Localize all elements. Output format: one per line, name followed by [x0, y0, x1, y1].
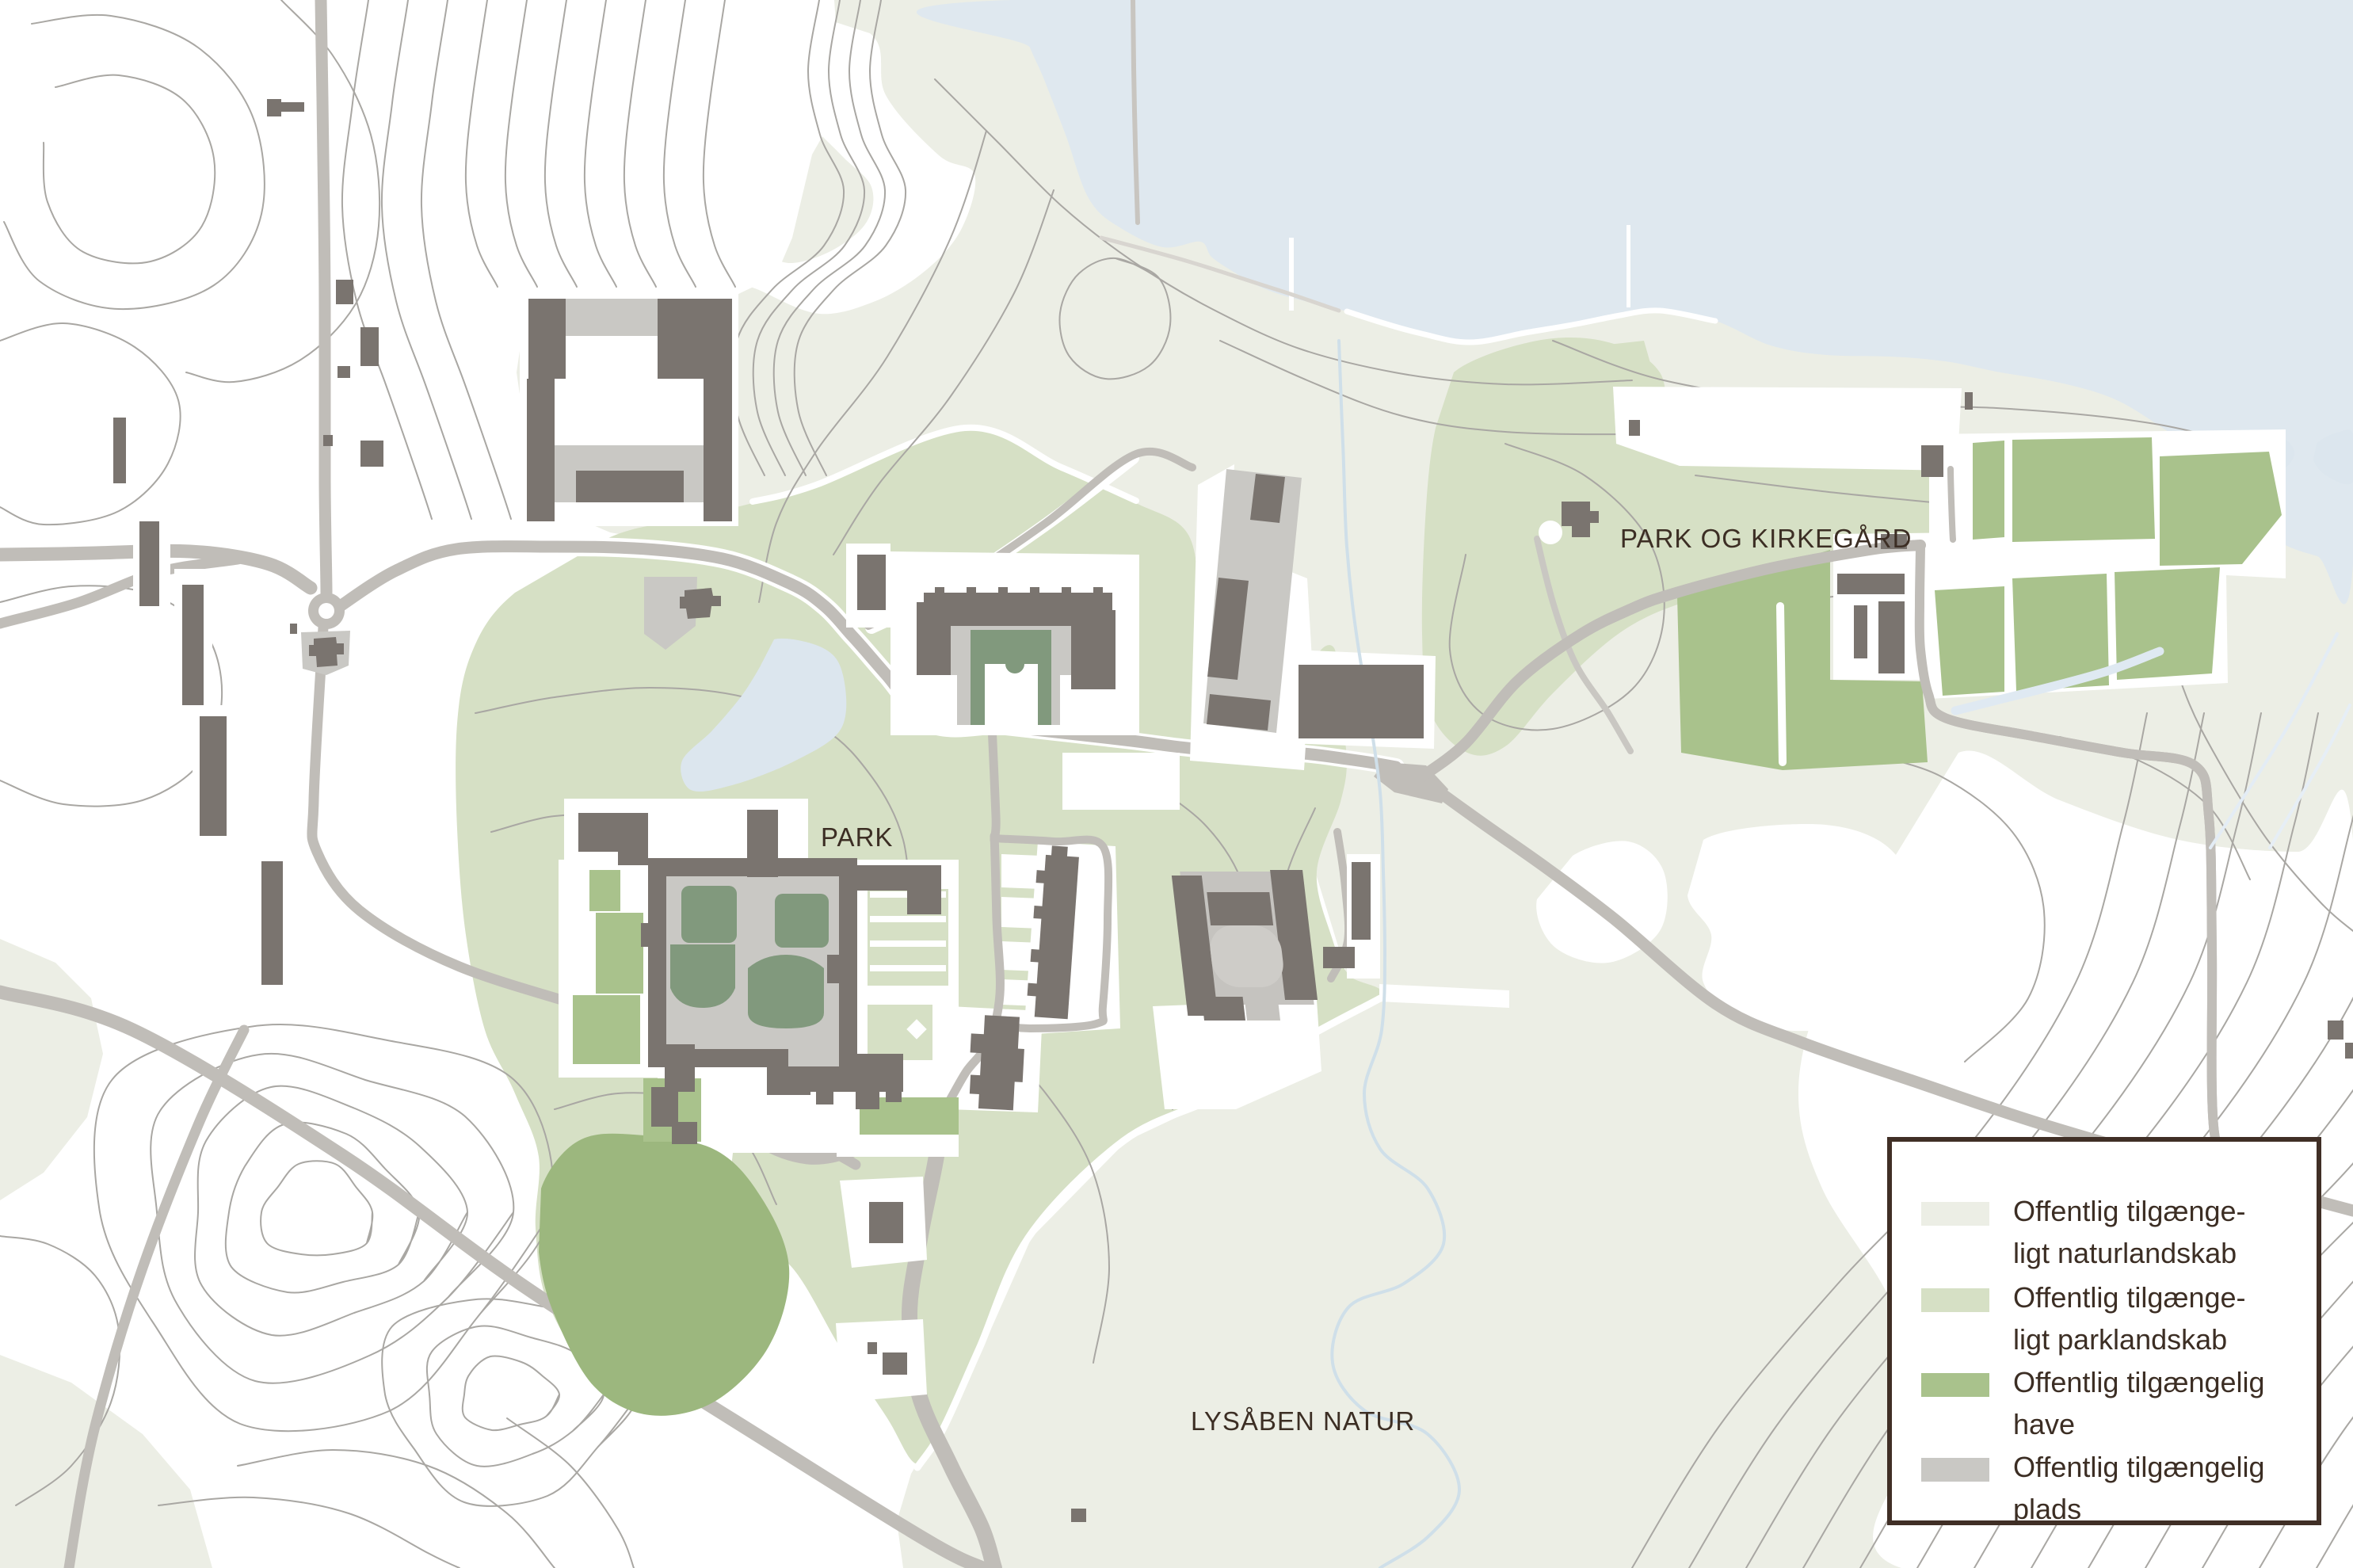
svg-text:Offentlig tilgænge-: Offentlig tilgænge-: [2013, 1195, 2246, 1227]
svg-text:Offentlig tilgænge-: Offentlig tilgænge-: [2013, 1281, 2246, 1314]
svg-text:PARK: PARK: [821, 822, 893, 852]
svg-text:Offentlig tilgængelig: Offentlig tilgængelig: [2013, 1451, 2265, 1483]
svg-text:have: have: [2013, 1408, 2075, 1440]
svg-text:PARK OG KIRKEGÅRD: PARK OG KIRKEGÅRD: [1620, 524, 1912, 553]
svg-text:ligt parklandskab: ligt parklandskab: [2013, 1323, 2227, 1356]
svg-text:LYSÅBEN NATUR: LYSÅBEN NATUR: [1191, 1406, 1415, 1436]
svg-text:Offentlig tilgængelig: Offentlig tilgængelig: [2013, 1366, 2265, 1398]
svg-text:ligt naturlandskab: ligt naturlandskab: [2013, 1237, 2237, 1269]
svg-text:plads: plads: [2013, 1493, 2081, 1525]
